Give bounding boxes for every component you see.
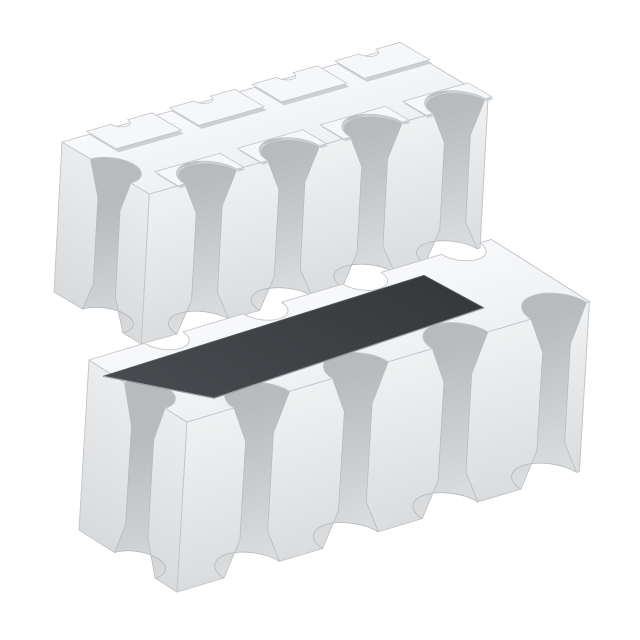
resistor-array-product-photo (0, 0, 640, 640)
photo-stage (0, 0, 640, 640)
